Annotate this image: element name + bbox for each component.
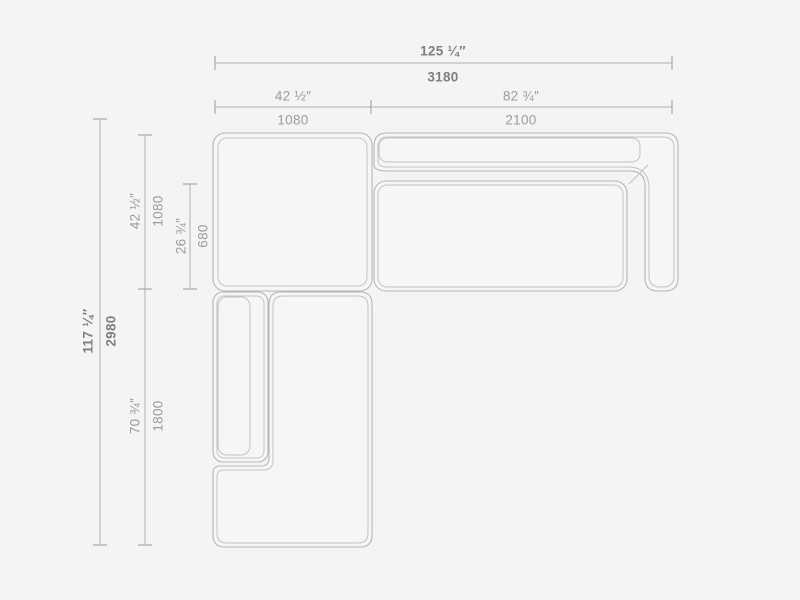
label-seat-depth-mm: 680 <box>196 224 211 247</box>
label-chaise-length-in: 70 ¾″ <box>128 398 143 434</box>
label-module-a-depth-mm: 1080 <box>151 195 166 226</box>
label-overall-width-mm: 3180 <box>427 70 458 85</box>
chaise-arm-outline <box>213 292 268 462</box>
label-chaise-length-mm: 1800 <box>151 400 166 431</box>
square-seat-outline <box>213 133 372 291</box>
sofa-module-right <box>374 133 678 291</box>
sofa-plan <box>213 133 678 547</box>
label-overall-depth-mm: 2980 <box>104 315 119 346</box>
dim-overall-width: 125 ¼″ 3180 <box>215 44 672 85</box>
label-module-a-depth-in: 42 ½″ <box>128 193 143 229</box>
chaise-module <box>213 292 372 547</box>
square-seat-module <box>213 133 372 291</box>
label-module-a-width-mm: 1080 <box>277 113 308 128</box>
dim-segment-depths: 42 ½″ 1080 70 ¾″ 1800 <box>128 135 166 545</box>
sofa-technical-drawing: 125 ¼″ 3180 42 ½″ 1080 82 ¾″ 2100 117 ¼″ <box>0 0 800 600</box>
label-seat-depth-in: 26 ¾″ <box>174 218 189 254</box>
label-overall-width-in: 125 ¼″ <box>420 44 466 59</box>
label-module-b-width-in: 82 ¾″ <box>503 89 539 104</box>
label-overall-depth-in: 117 ¼″ <box>81 308 96 353</box>
dimension-lines: 125 ¼″ 3180 42 ½″ 1080 82 ¾″ 2100 117 ¼″ <box>81 44 672 545</box>
dim-seat-depth: 26 ¾″ 680 <box>174 184 211 289</box>
dim-overall-depth: 117 ¼″ 2980 <box>81 119 119 545</box>
seat-cushion-outline <box>374 181 627 291</box>
plan-drawing-svg: 125 ¼″ 3180 42 ½″ 1080 82 ¾″ 2100 117 ¼″ <box>0 0 800 600</box>
label-module-a-width-in: 42 ½″ <box>275 89 311 104</box>
label-module-b-width-mm: 2100 <box>505 113 536 128</box>
dim-segment-widths: 42 ½″ 1080 82 ¾″ 2100 <box>215 89 672 128</box>
